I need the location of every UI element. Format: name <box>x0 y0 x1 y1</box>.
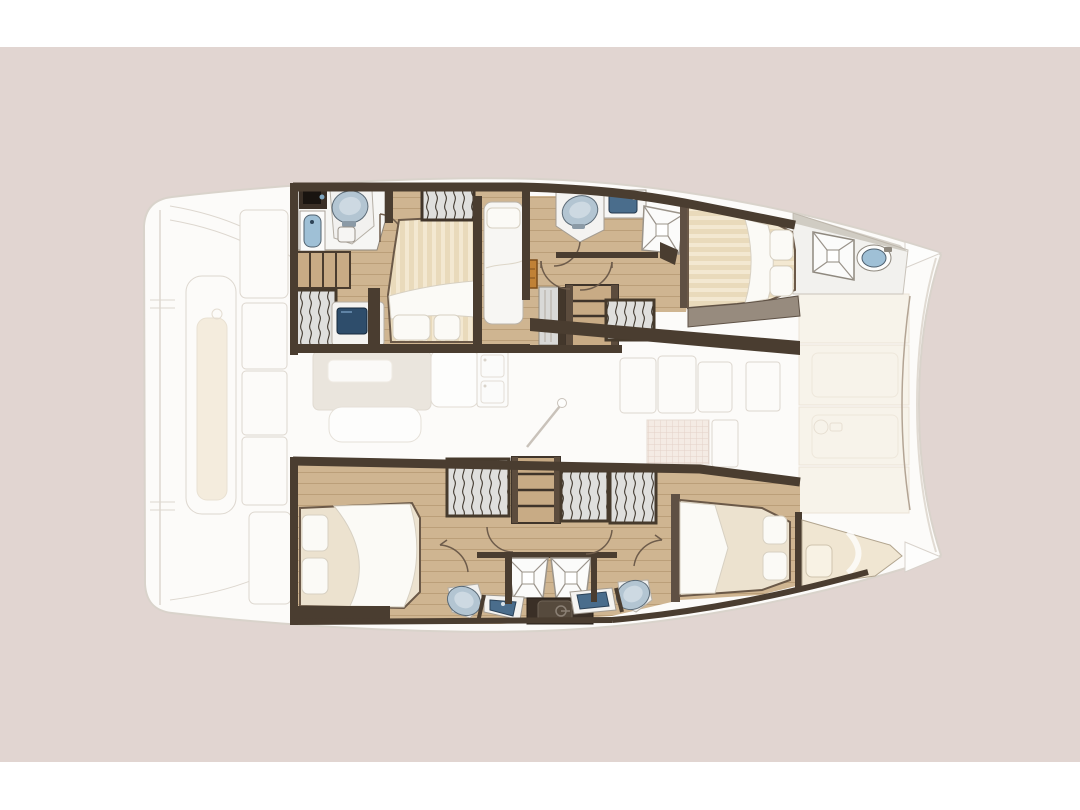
single-berth <box>484 202 523 324</box>
bed-trim <box>680 206 688 308</box>
screenshot-canvas <box>0 0 1080 810</box>
wardrobe <box>561 471 608 521</box>
wardrobe <box>294 290 336 349</box>
aft-steps <box>296 252 350 288</box>
sink <box>300 211 325 251</box>
locker <box>539 287 559 345</box>
trim <box>795 512 802 590</box>
double-bed <box>680 500 790 596</box>
shower-grate <box>338 227 355 242</box>
sink <box>857 245 892 271</box>
deck-hatch <box>813 232 854 280</box>
bed-trim <box>671 494 680 602</box>
faucet-dot <box>320 195 325 200</box>
shower <box>508 558 548 598</box>
pillow <box>806 545 832 577</box>
wardrobe <box>610 471 656 523</box>
divider-wall <box>368 288 380 348</box>
bath-cabinet-inset <box>303 191 321 204</box>
catamaran-floorplan <box>0 0 1080 810</box>
double-bed <box>300 503 420 608</box>
double-bed <box>388 216 474 342</box>
